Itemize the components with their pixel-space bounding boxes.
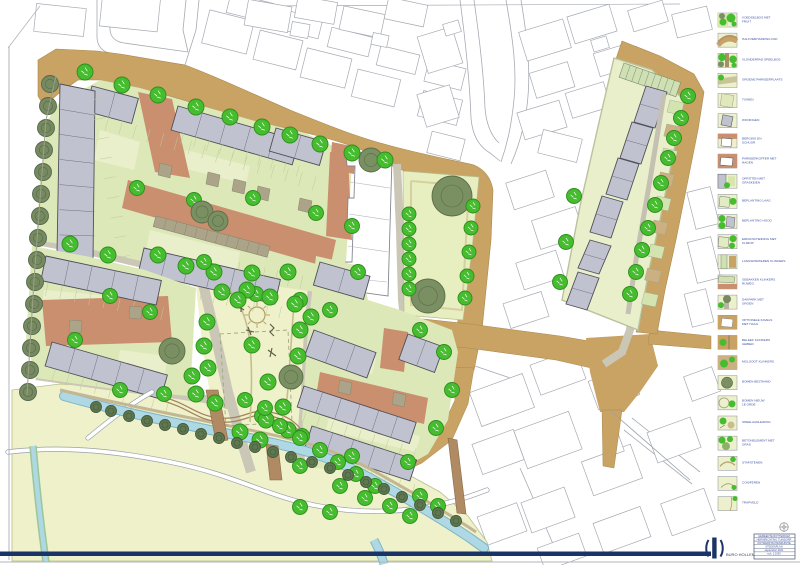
svg-text:SPEELAANLEIDING: SPEELAANLEIDING: [742, 420, 771, 424]
svg-text:MET HAAG: MET HAAG: [742, 322, 759, 326]
svg-text:SCHUUR: SCHUUR: [742, 140, 756, 144]
svg-text:WONINGEN: WONINGEN: [742, 118, 759, 122]
svg-text:BURO HOLLEMA: BURO HOLLEMA: [726, 552, 758, 557]
svg-text:STEDENPLAN: STEDENPLAN: [765, 545, 782, 549]
svg-text:GROENE PARKEERPLAATS: GROENE PARKEERPLAATS: [742, 77, 782, 81]
svg-text:LANGSPARKEREN KLINKERS: LANGSPARKEREN KLINKERS: [742, 259, 785, 263]
svg-text:VLONDERPAD SPEELBOS: VLONDERPAD SPEELBOS: [742, 57, 780, 61]
svg-text:BEPLANTING LAAG: BEPLANTING LAAG: [742, 198, 771, 202]
svg-text:GEBIED: GEBIED: [742, 342, 754, 346]
svg-text:RIJWEG: RIJWEG: [742, 281, 755, 285]
svg-text:MOLGOOT KLINKERS: MOLGOOT KLINKERS: [742, 360, 774, 364]
svg-text:september 2021: september 2021: [765, 548, 784, 552]
svg-text:TRAPVELD: TRAPVELD: [742, 501, 759, 505]
svg-text:GEMEENTE ROTTERDAM: GEMEENTE ROTTERDAM: [758, 534, 790, 538]
svg-text:ONTWERP BUITENRUIMTE: ONTWERP BUITENRUIMTE: [757, 541, 791, 545]
svg-text:HERINRICHTING TUINDORP: HERINRICHTING TUINDORP: [757, 537, 792, 541]
svg-text:TUINEN: TUINEN: [742, 98, 754, 102]
svg-text:HALFVERHARDING PAD: HALFVERHARDING PAD: [742, 37, 778, 41]
svg-text:BOMEN BESTAAND: BOMEN BESTAAND: [742, 380, 771, 384]
svg-text:BEPLANTING HOOG: BEPLANTING HOOG: [742, 219, 773, 223]
svg-text:GRASKEIEN: GRASKEIEN: [742, 181, 760, 185]
svg-text:sch. 1:1000: sch. 1:1000: [767, 552, 781, 556]
svg-text:CONIFEREN: CONIFEREN: [742, 480, 760, 484]
svg-text:HAGEN: HAGEN: [742, 161, 753, 165]
svg-text:GRAS: GRAS: [742, 443, 751, 447]
svg-text:KLIMOP: KLIMOP: [742, 241, 754, 245]
svg-text:1E ORDE: 1E ORDE: [742, 402, 756, 406]
svg-text:FRUIT: FRUIT: [742, 20, 751, 24]
svg-text:STAPSTENEN: STAPSTENEN: [742, 460, 762, 464]
svg-text:GROEN: GROEN: [742, 302, 753, 306]
